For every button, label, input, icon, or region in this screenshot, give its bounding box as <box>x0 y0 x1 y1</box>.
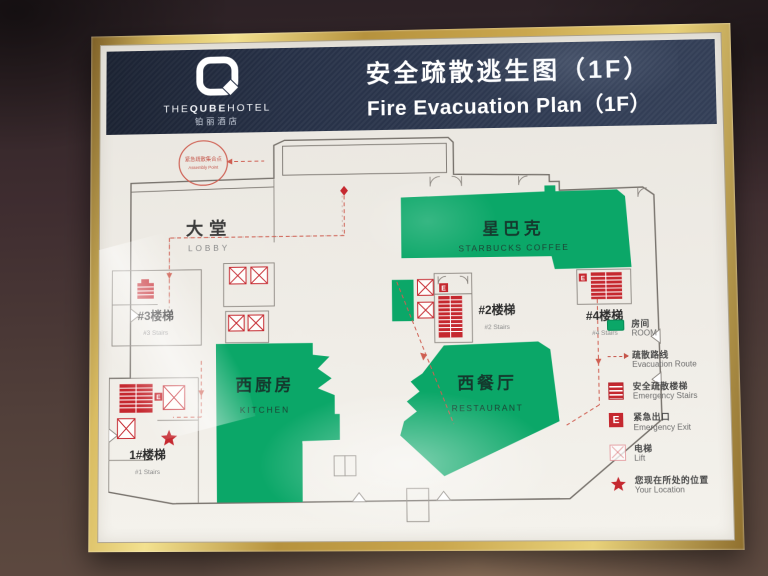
stairs1-icon <box>119 384 152 413</box>
stairs4-icon <box>591 272 622 299</box>
your-location-icon <box>610 476 627 491</box>
sign-board: THEQUBEHOTEL 铂丽酒店 安全疏散逃生图（1F） Fire Evacu… <box>97 32 735 543</box>
legend-item-room: 房间ROOM <box>607 317 718 338</box>
svg-text:#1 Stairs: #1 Stairs <box>135 469 160 476</box>
hotel-logo: THEQUBEHOTEL 铂丽酒店 <box>106 53 329 128</box>
legend-stairs-en: Emergency Stairs <box>633 391 698 401</box>
svg-text:#3楼梯: #3楼梯 <box>138 309 175 324</box>
svg-text:星巴克: 星巴克 <box>482 217 545 238</box>
svg-text:E: E <box>441 286 446 293</box>
brand-name: THEQUBEHOTEL <box>163 101 271 115</box>
legend: 房间ROOM 疏散路线Evacuation Route 安全疏散楼梯Emerge… <box>607 317 722 506</box>
brand-qube: QUBE <box>190 102 227 114</box>
svg-text:#2楼梯: #2楼梯 <box>478 303 516 318</box>
svg-text:西厨房: 西厨房 <box>235 374 294 395</box>
legend-location-cn: 您现在所处的位置 <box>635 475 709 486</box>
brand-hotel: HOTEL <box>227 101 271 114</box>
svg-text:E: E <box>156 394 160 401</box>
legend-room-cn: 房间 <box>631 318 657 329</box>
stairs2-icon <box>438 296 462 338</box>
floor-plan-area: 紧急疏散集合点 Assembly Point <box>104 124 727 536</box>
svg-text:E: E <box>581 275 585 282</box>
area-kitchen <box>216 343 340 503</box>
green-areas <box>216 184 637 502</box>
building-outline <box>108 134 664 504</box>
svg-text:西餐厅: 西餐厅 <box>457 372 517 393</box>
legend-stairs-cn: 安全疏散楼梯 <box>633 380 698 391</box>
legend-lift-cn: 电梯 <box>634 443 653 454</box>
svg-text:STARBUCKS COFFEE: STARBUCKS COFFEE <box>458 243 569 254</box>
evacuation-route-icon <box>608 356 628 358</box>
svg-text:紧急疏散集合点: 紧急疏散集合点 <box>185 155 223 164</box>
gold-frame: THEQUBEHOTEL 铂丽酒店 安全疏散逃生图（1F） Fire Evacu… <box>88 23 744 552</box>
legend-exit-cn: 紧急出口 <box>633 412 691 423</box>
stairs3-icon <box>137 279 153 299</box>
svg-text:1#楼梯: 1#楼梯 <box>129 448 166 463</box>
svg-text:LOBBY: LOBBY <box>188 244 230 254</box>
lift-icon <box>609 445 626 461</box>
legend-route-cn: 疏散路线 <box>632 349 697 360</box>
legend-item-emergency-exit: E 紧急出口Emergency Exit <box>609 411 720 432</box>
your-location-star <box>161 430 177 446</box>
brand-the: THE <box>163 103 189 115</box>
legend-location-en: Your Location <box>635 485 709 495</box>
emergency-stairs-icon <box>608 382 624 399</box>
legend-item-evacuation-route: 疏散路线Evacuation Route <box>607 349 718 370</box>
svg-text:#2 Stairs: #2 Stairs <box>484 324 510 331</box>
svg-text:#3 Stairs: #3 Stairs <box>143 330 168 337</box>
legend-item-lift: 电梯Lift <box>609 443 720 464</box>
legend-room-en: ROOM <box>631 328 657 338</box>
legend-lift-en: Lift <box>634 454 653 464</box>
emergency-exit-icon: E <box>609 413 624 427</box>
legend-exit-en: Emergency Exit <box>633 422 691 432</box>
brand-name-cn: 铂丽酒店 <box>195 115 240 128</box>
legend-item-your-location: 您现在所处的位置Your Location <box>610 475 721 496</box>
svg-text:RESTAURANT: RESTAURANT <box>452 403 524 413</box>
room-swatch-icon <box>607 320 624 331</box>
qube-logo-icon <box>195 55 240 99</box>
header-glare <box>432 40 680 129</box>
svg-text:KITCHEN: KITCHEN <box>240 405 290 415</box>
svg-text:大堂: 大堂 <box>186 218 232 239</box>
assembly-point: 紧急疏散集合点 Assembly Point <box>179 140 227 185</box>
svg-text:Assembly Point: Assembly Point <box>188 165 219 170</box>
legend-item-emergency-stairs: 安全疏散楼梯Emergency Stairs <box>608 380 719 401</box>
legend-route-en: Evacuation Route <box>632 359 697 369</box>
photo-of-evacuation-sign: THEQUBEHOTEL 铂丽酒店 安全疏散逃生图（1F） Fire Evacu… <box>0 0 768 576</box>
floor-plan: 紧急疏散集合点 Assembly Point <box>108 127 665 532</box>
sign-header: THEQUBEHOTEL 铂丽酒店 安全疏散逃生图（1F） Fire Evacu… <box>106 39 717 135</box>
